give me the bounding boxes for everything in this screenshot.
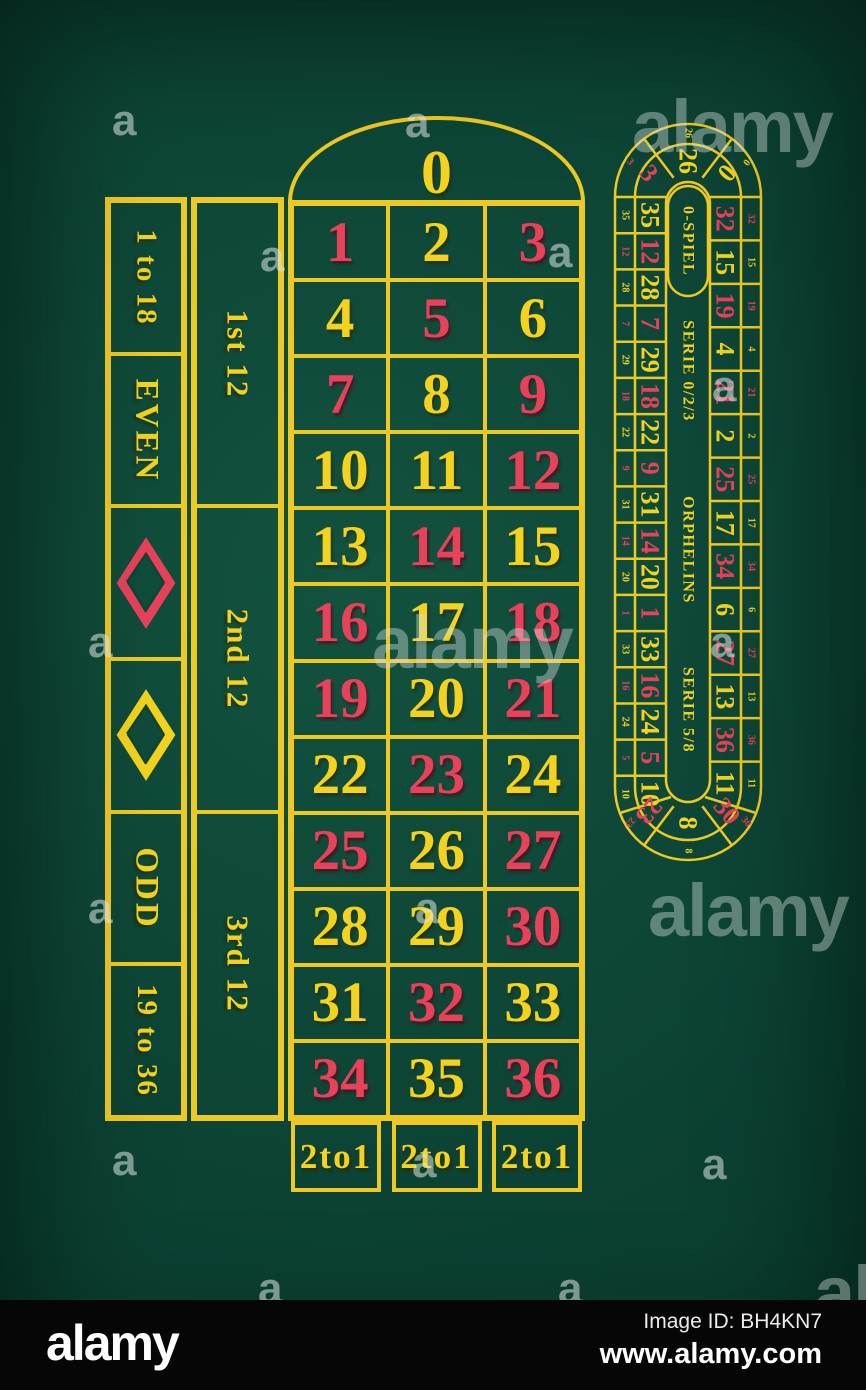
bet-number-9[interactable]: 9: [485, 356, 581, 432]
bet-number-26[interactable]: 26: [388, 813, 484, 889]
bet-number-4[interactable]: 4: [292, 280, 388, 356]
number-label: 24: [504, 742, 561, 807]
bet-number-21[interactable]: 21: [485, 661, 581, 737]
bet-number-13[interactable]: 13: [292, 508, 388, 584]
bet-number-28[interactable]: 28: [292, 889, 388, 965]
bet-number-8[interactable]: 8: [388, 356, 484, 432]
racetrack-number-32[interactable]: 32: [746, 214, 757, 224]
racetrack-number-26[interactable]: 26: [683, 128, 694, 138]
racetrack-number-5[interactable]: 5: [620, 755, 631, 760]
dozens-column: 1st 122nd 123rd 12: [191, 197, 284, 1121]
racetrack-number-17[interactable]: 17: [746, 518, 757, 528]
bet-number-33[interactable]: 33: [485, 965, 581, 1041]
number-label: 20: [408, 666, 465, 731]
racetrack-sector-serie-0-2-3[interactable]: SERIE 0/2/3: [680, 320, 697, 421]
outside-bet-label: EVEN: [128, 378, 165, 482]
number-label: 9: [519, 362, 548, 427]
outside-bet-1-to-18[interactable]: 1 to 18: [109, 201, 183, 354]
column-bet-2to1-3[interactable]: 2to1: [492, 1121, 582, 1192]
racetrack-number-0[interactable]: 0: [712, 159, 743, 188]
racetrack-number-6[interactable]: 6: [746, 607, 757, 612]
dozen-label: 1st 12: [220, 309, 256, 398]
racetrack-number-22[interactable]: 22: [620, 427, 631, 437]
dozen-bet-3rd-12[interactable]: 3rd 12: [195, 812, 280, 1117]
zero-number: 0: [421, 144, 452, 202]
bet-number-12[interactable]: 12: [485, 432, 581, 508]
racetrack-number-14[interactable]: 14: [636, 528, 665, 554]
outside-bet-19-to-36[interactable]: 19 to 36: [109, 964, 183, 1117]
number-label: 30: [504, 894, 561, 959]
watermark-a-letter: a: [112, 96, 136, 146]
racetrack-number-11[interactable]: 11: [746, 779, 757, 788]
column-bet-2to1-2[interactable]: 2to1: [392, 1121, 482, 1192]
dozen-bet-1st-12[interactable]: 1st 12: [195, 201, 280, 506]
column-bet-2to1-1[interactable]: 2to1: [291, 1121, 381, 1192]
number-label: 32: [408, 970, 465, 1035]
bet-number-23[interactable]: 23: [388, 737, 484, 813]
racetrack-number-13[interactable]: 13: [746, 691, 757, 701]
bet-number-30[interactable]: 30: [485, 889, 581, 965]
racetrack-number-7[interactable]: 7: [620, 321, 631, 326]
bet-number-25[interactable]: 25: [292, 813, 388, 889]
racetrack-number-15[interactable]: 15: [746, 257, 757, 267]
number-label: 22: [312, 742, 369, 807]
number-label: 8: [422, 362, 451, 427]
number-label: 12: [504, 438, 561, 503]
alamy-url: www.alamy.com: [600, 1338, 822, 1371]
number-label: 3: [519, 210, 548, 275]
outside-bet-label: 1 to 18: [130, 229, 163, 325]
racetrack-number-34[interactable]: 34: [711, 553, 740, 579]
bet-number-34[interactable]: 34: [292, 1041, 388, 1117]
racetrack-number-31[interactable]: 31: [620, 500, 631, 510]
outside-bet-red-diamond[interactable]: [109, 506, 183, 659]
racetrack-number-2[interactable]: 2: [711, 429, 740, 442]
bet-number-19[interactable]: 19: [292, 661, 388, 737]
number-label: 13: [312, 514, 369, 579]
alamy-logo: alamy: [46, 1314, 178, 1372]
watermark-footer-bar: alamy Image ID: BH4KN7 www.alamy.com: [0, 1300, 866, 1390]
racetrack-number-10[interactable]: 10: [620, 789, 631, 799]
bet-number-10[interactable]: 10: [292, 432, 388, 508]
outside-bet-label: ODD: [128, 847, 165, 929]
outside-bets-column: 1 to 18EVEN ODD19 to 36: [105, 197, 187, 1121]
racetrack-number-9[interactable]: 9: [636, 462, 665, 475]
column-bet-label: 2to1: [300, 1137, 372, 1177]
racetrack-number-29[interactable]: 29: [620, 355, 631, 365]
bet-number-27[interactable]: 27: [485, 813, 581, 889]
racetrack-number-1[interactable]: 1: [620, 611, 631, 616]
number-label: 34: [312, 1046, 369, 1111]
racetrack: 3535121228287729291818222299313114142020…: [603, 116, 773, 868]
racetrack-number-22[interactable]: 22: [636, 419, 665, 445]
racetrack-number-27[interactable]: 27: [711, 640, 740, 666]
bet-number-20[interactable]: 20: [388, 661, 484, 737]
column-bets-row: 2to12to12to1: [288, 1121, 585, 1192]
racetrack-number-32[interactable]: 32: [711, 206, 740, 232]
racetrack-number-17[interactable]: 17: [711, 510, 740, 536]
dozen-label: 3rd 12: [220, 916, 256, 1013]
number-label: 29: [408, 894, 465, 959]
number-label: 26: [408, 818, 465, 883]
bet-number-5[interactable]: 5: [388, 280, 484, 356]
number-label: 2: [422, 210, 451, 275]
racetrack-number-25[interactable]: 25: [711, 466, 740, 492]
number-label: 14: [408, 514, 465, 579]
column-bet-label: 2to1: [400, 1137, 472, 1177]
watermark-alamy-text: alamy: [648, 868, 848, 953]
racetrack-number-19[interactable]: 19: [711, 293, 740, 319]
racetrack-number-24[interactable]: 24: [620, 717, 631, 727]
racetrack-number-29[interactable]: 29: [636, 347, 665, 373]
racetrack-number-33[interactable]: 33: [620, 644, 631, 654]
number-label: 18: [504, 590, 561, 655]
racetrack-number-20[interactable]: 20: [620, 572, 631, 582]
racetrack-number-24[interactable]: 24: [636, 709, 665, 735]
racetrack-number-16[interactable]: 16: [636, 672, 665, 698]
racetrack-number-11[interactable]: 11: [711, 771, 740, 796]
outside-bet-black-diamond[interactable]: [109, 659, 183, 812]
number-label: 19: [312, 666, 369, 731]
racetrack-number-14[interactable]: 14: [620, 536, 631, 546]
racetrack-number-36[interactable]: 36: [746, 735, 757, 745]
racetrack-number-8[interactable]: 8: [683, 849, 694, 854]
number-label: 5: [422, 286, 451, 351]
bet-number-18[interactable]: 18: [485, 584, 581, 660]
racetrack-number-34[interactable]: 34: [746, 561, 757, 571]
number-label: 31: [312, 970, 369, 1035]
racetrack-number-36[interactable]: 36: [711, 727, 740, 753]
racetrack-number-25[interactable]: 25: [746, 474, 757, 484]
racetrack-sector-serie-5-8[interactable]: SERIE 5/8: [680, 667, 697, 753]
bet-number-14[interactable]: 14: [388, 508, 484, 584]
bet-number-6[interactable]: 6: [485, 280, 581, 356]
outside-bet-even[interactable]: EVEN: [109, 354, 183, 507]
number-label: 27: [504, 818, 561, 883]
red-diamond-icon: [115, 537, 177, 629]
racetrack-number-9[interactable]: 9: [620, 466, 631, 471]
racetrack-number-5[interactable]: 5: [636, 751, 665, 764]
number-label: 36: [504, 1046, 561, 1111]
racetrack-number-26[interactable]: 26: [674, 148, 703, 174]
outside-bet-odd[interactable]: ODD: [109, 812, 183, 965]
number-label: 16: [312, 590, 369, 655]
racetrack-number-35[interactable]: 35: [636, 202, 665, 228]
number-label: 25: [312, 818, 369, 883]
racetrack-number-23[interactable]: 23: [623, 815, 638, 830]
bet-number-32[interactable]: 32: [388, 965, 484, 1041]
number-label: 6: [519, 286, 548, 351]
bet-number-36[interactable]: 36: [485, 1041, 581, 1117]
racetrack-number-31[interactable]: 31: [636, 492, 665, 518]
bet-number-16[interactable]: 16: [292, 584, 388, 660]
bet-number-7[interactable]: 7: [292, 356, 388, 432]
racetrack-number-30[interactable]: 30: [739, 815, 754, 830]
number-label: 23: [408, 742, 465, 807]
racetrack-number-1[interactable]: 1: [636, 607, 665, 620]
racetrack-number-8[interactable]: 8: [674, 817, 703, 830]
racetrack-number-21[interactable]: 21: [711, 379, 740, 405]
number-label: 11: [410, 438, 464, 503]
number-label: 10: [312, 438, 369, 503]
number-label: 7: [326, 362, 355, 427]
outside-bet-label: 19 to 36: [130, 984, 163, 1097]
number-label: 17: [408, 590, 465, 655]
dozen-bet-2nd-12[interactable]: 2nd 12: [195, 506, 280, 811]
watermark-a-letter: a: [112, 1136, 136, 1186]
racetrack-number-15[interactable]: 15: [711, 249, 740, 275]
racetrack-number-18[interactable]: 18: [636, 383, 665, 409]
racetrack-number-18[interactable]: 18: [620, 391, 631, 401]
racetrack-number-3[interactable]: 3: [634, 159, 665, 188]
racetrack-number-16[interactable]: 16: [620, 680, 631, 690]
number-label: 15: [504, 514, 561, 579]
racetrack-number-7[interactable]: 7: [636, 317, 665, 330]
racetrack-sector-0-spiel[interactable]: 0-SPIEL: [680, 206, 697, 276]
roulette-table-layout: 0 12345678910111213141516171819202122232…: [0, 0, 866, 1390]
numbers-grid: 1234567891011121314151617181920212223242…: [288, 200, 585, 1121]
number-label: 4: [326, 286, 355, 351]
racetrack-number-20[interactable]: 20: [636, 564, 665, 590]
number-label: 35: [408, 1046, 465, 1111]
racetrack-number-4[interactable]: 4: [711, 343, 740, 356]
racetrack-number-2[interactable]: 2: [746, 433, 757, 438]
racetrack-number-12[interactable]: 12: [620, 246, 631, 256]
racetrack-number-28[interactable]: 28: [620, 282, 631, 292]
bet-number-17[interactable]: 17: [388, 584, 484, 660]
image-id-text: Image ID: BH4KN7: [600, 1310, 822, 1334]
yellow-diamond-icon: [115, 689, 177, 781]
number-label: 33: [504, 970, 561, 1035]
bet-number-3[interactable]: 3: [485, 204, 581, 280]
bet-zero-cell[interactable]: 0: [288, 116, 585, 202]
racetrack-number-6[interactable]: 6: [711, 603, 740, 616]
racetrack-number-35[interactable]: 35: [620, 210, 631, 220]
racetrack-number-19[interactable]: 19: [746, 301, 757, 311]
number-label: 1: [326, 210, 355, 275]
bet-number-24[interactable]: 24: [485, 737, 581, 813]
racetrack-number-4[interactable]: 4: [746, 347, 757, 352]
racetrack-number-27[interactable]: 27: [746, 648, 757, 658]
bet-number-11[interactable]: 11: [388, 432, 484, 508]
number-label: 28: [312, 894, 369, 959]
racetrack-number-21[interactable]: 21: [746, 387, 757, 397]
racetrack-number-12[interactable]: 12: [636, 238, 665, 264]
bet-number-35[interactable]: 35: [388, 1041, 484, 1117]
racetrack-number-13[interactable]: 13: [711, 683, 740, 709]
bet-number-22[interactable]: 22: [292, 737, 388, 813]
bet-number-2[interactable]: 2: [388, 204, 484, 280]
number-label: 21: [504, 666, 561, 731]
dozen-label: 2nd 12: [220, 609, 256, 710]
watermark-a-letter: a: [702, 1140, 726, 1190]
bet-number-1[interactable]: 1: [292, 204, 388, 280]
racetrack-number-33[interactable]: 33: [636, 636, 665, 662]
racetrack-sector-orphelins[interactable]: ORPHELINS: [680, 496, 697, 604]
bet-number-31[interactable]: 31: [292, 965, 388, 1041]
bet-number-29[interactable]: 29: [388, 889, 484, 965]
column-bet-label: 2to1: [501, 1137, 573, 1177]
bet-number-15[interactable]: 15: [485, 508, 581, 584]
racetrack-number-28[interactable]: 28: [636, 274, 665, 300]
